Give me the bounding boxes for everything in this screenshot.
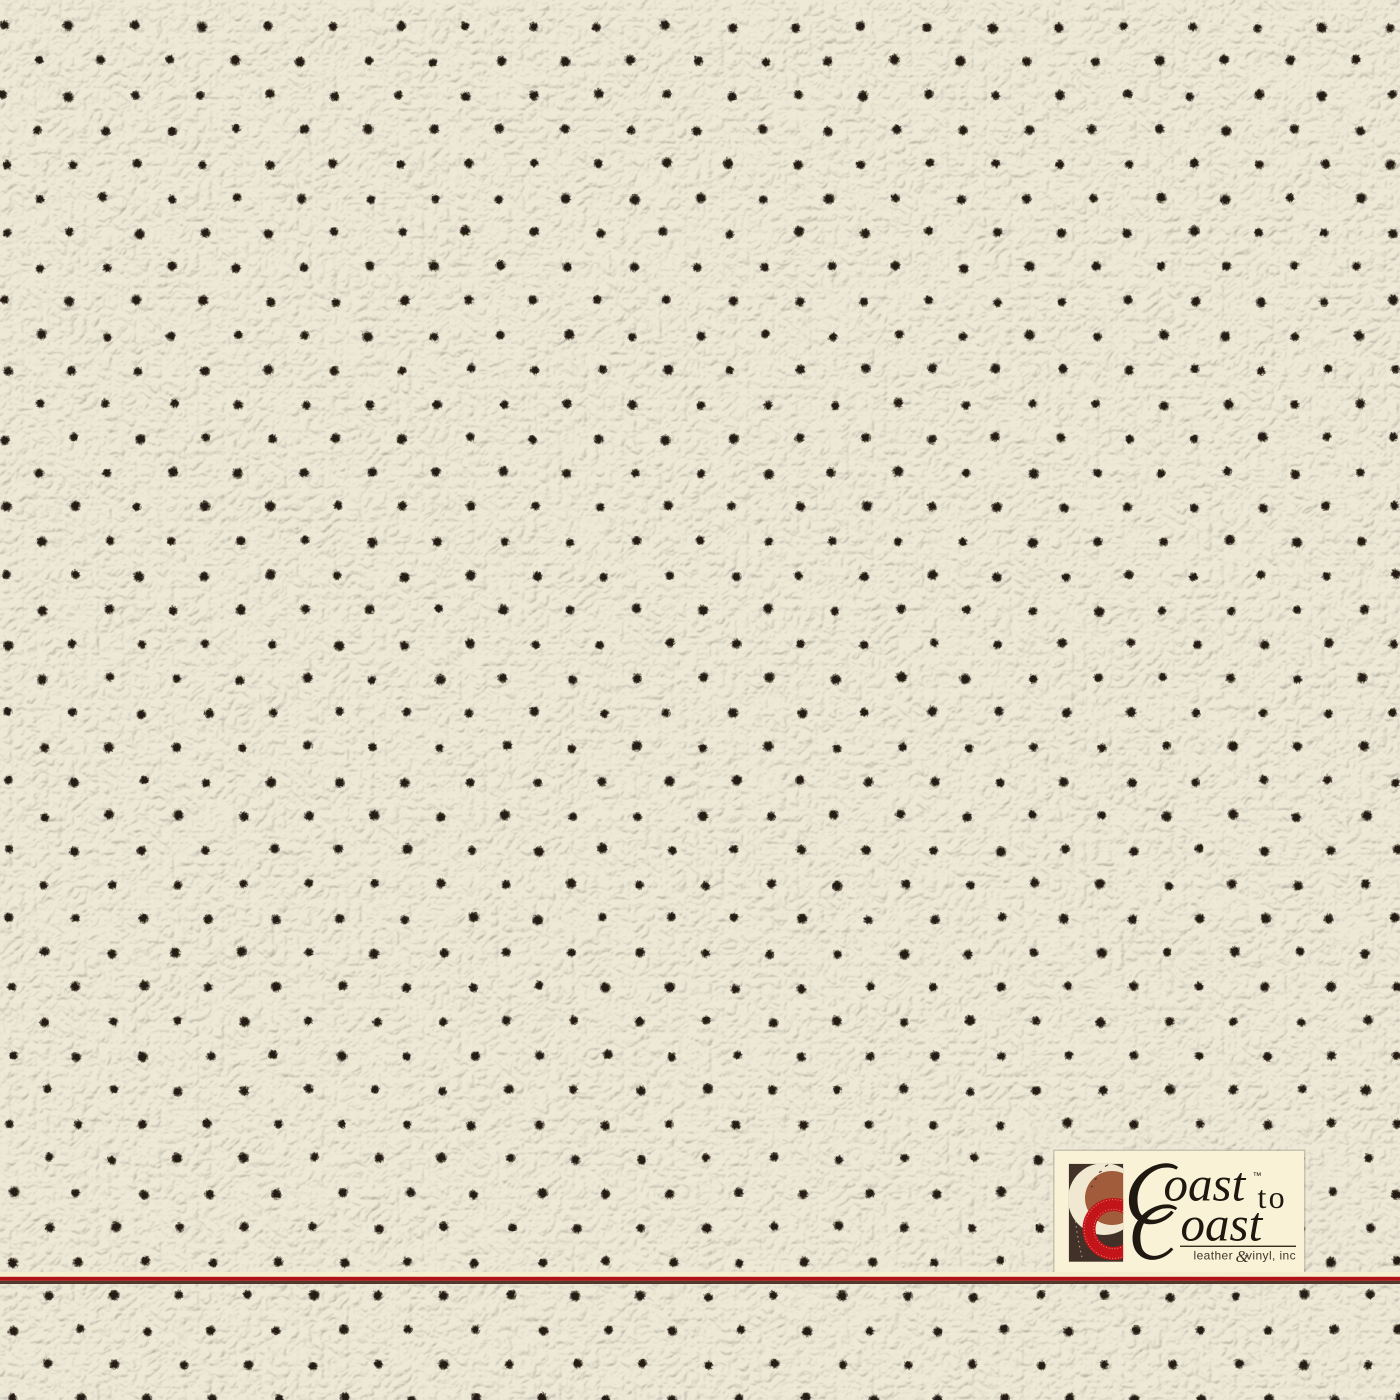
svg-text:leather: leather <box>1194 1249 1234 1263</box>
svg-text:vinyl, inc: vinyl, inc <box>1246 1249 1296 1263</box>
svg-text:oast: oast <box>1181 1197 1264 1252</box>
